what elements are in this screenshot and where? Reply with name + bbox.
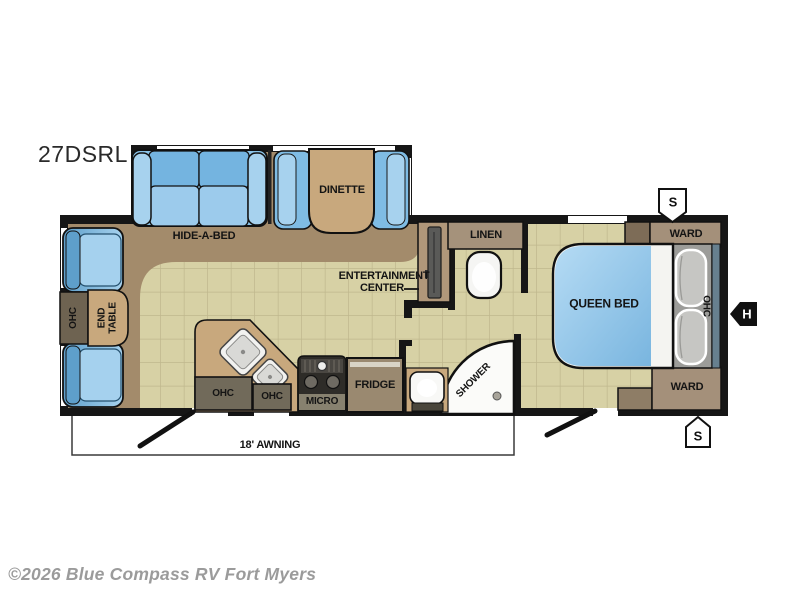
toilet [467, 252, 501, 298]
dealer-watermark: ©2026 Blue Compass RV Fort Myers [8, 564, 316, 585]
rear-ohc-label: OHC [69, 307, 80, 329]
entertainment-label-line1: ENTERTAINMENT [339, 271, 430, 283]
hide-a-bed-label: HIDE-A-BED [173, 231, 236, 243]
burner [327, 376, 340, 389]
kitchen-ohc-right-label: OHC [261, 392, 283, 403]
speaker-top-letter: S [669, 195, 678, 210]
awning-label: 18' AWNING [240, 440, 301, 452]
linen-label: LINEN [470, 230, 502, 242]
ward-bottom-label: WARD [671, 382, 704, 394]
slideout-divider [268, 150, 272, 224]
end-table-label: END TABLE [98, 292, 119, 344]
bath-sink [406, 368, 448, 412]
queen-bed-label: QUEEN BED [569, 298, 639, 311]
rv-floorplan-page: 27DSRL HIDE-A-BED DINETTE OHC END TABLE … [0, 0, 800, 600]
speaker-bottom-letter: S [694, 429, 703, 444]
rear-chair-top [63, 228, 123, 292]
bedroom-ohc-label: OHC [700, 295, 711, 317]
hide-a-bed-sofa [132, 150, 267, 226]
hookup-letter: H [742, 307, 751, 322]
bedroom-cabinet-bottom-small [618, 388, 652, 410]
shower-drain [493, 392, 501, 400]
entertainment-center [418, 222, 450, 302]
burner [305, 376, 318, 389]
kitchen-ohc-left-label: OHC [212, 389, 234, 400]
micro-label: MICRO [306, 397, 338, 408]
rear-chair-bottom [63, 343, 123, 407]
range-knob [318, 362, 327, 371]
ward-top-label: WARD [670, 229, 703, 241]
fridge-label: FRIDGE [355, 380, 395, 392]
floorplan-drawing [0, 0, 800, 600]
model-number: 27DSRL [38, 141, 128, 168]
entertainment-label-line2: CENTER [360, 283, 404, 295]
dinette-label: DINETTE [319, 185, 365, 197]
bed-ohc-strip [712, 244, 720, 368]
